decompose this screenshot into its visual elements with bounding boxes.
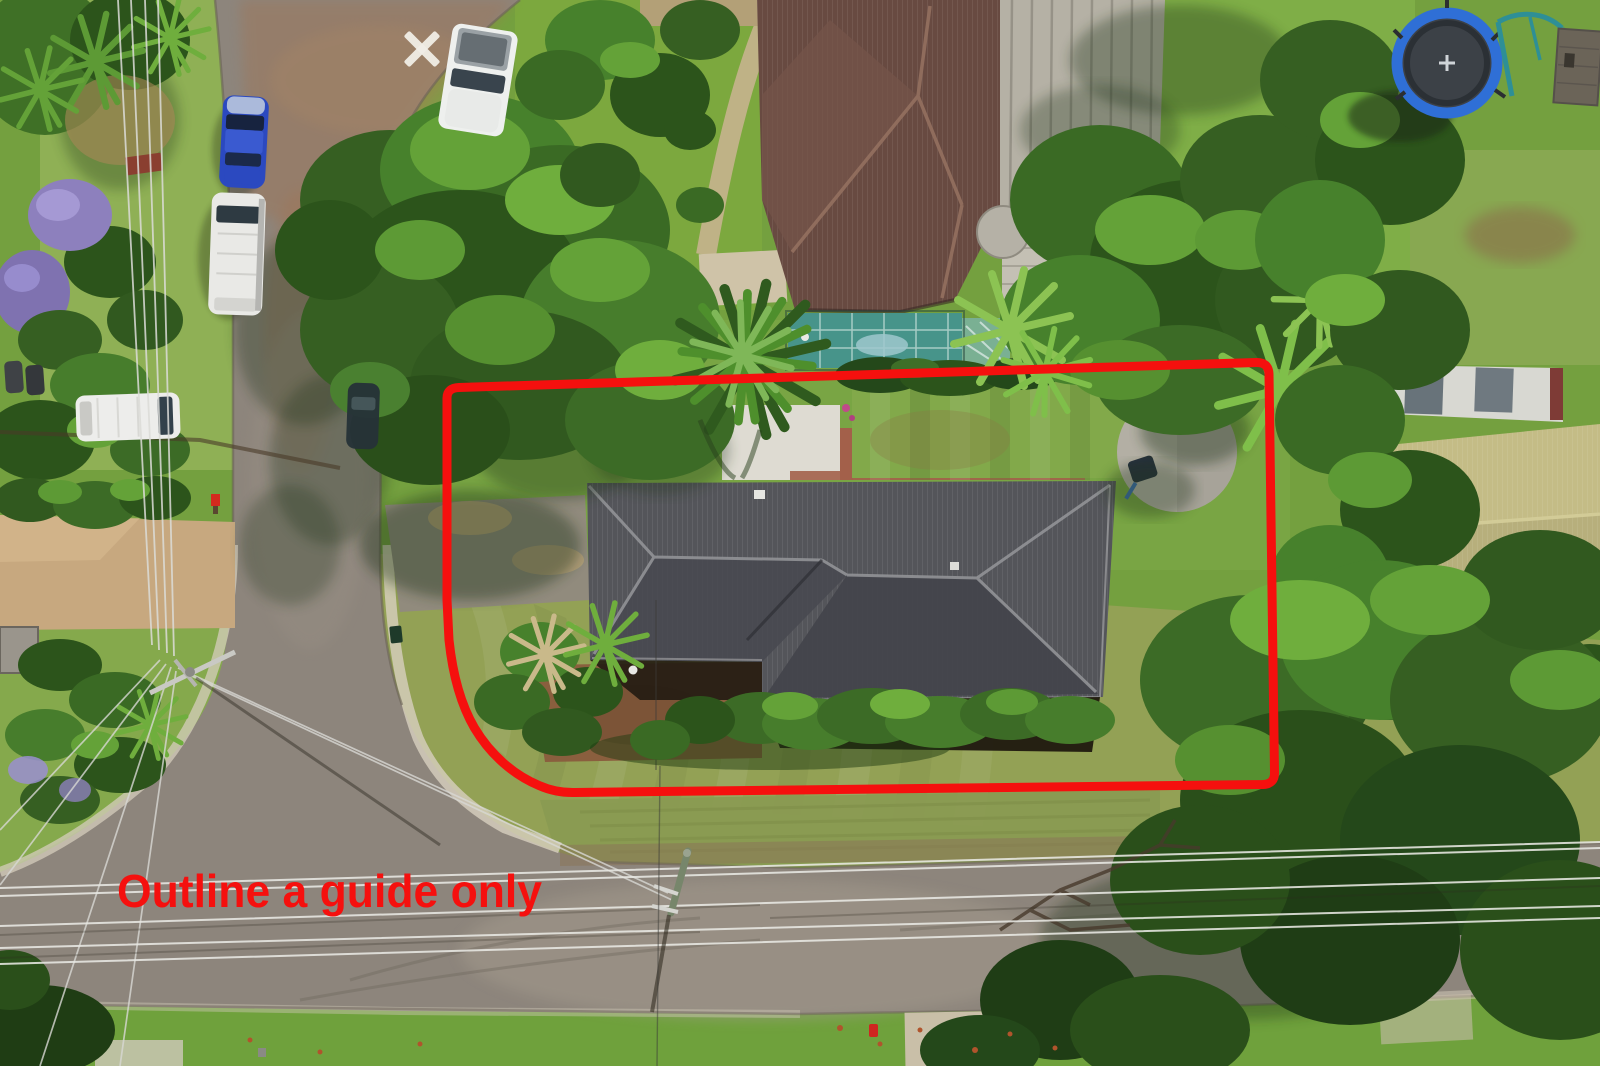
green-wheelie-bin — [389, 625, 403, 643]
skylight-2 — [1474, 367, 1514, 412]
blue-hatchback — [219, 95, 270, 189]
white-dot-dish — [629, 666, 638, 675]
maroon-edge — [1550, 368, 1563, 420]
pink-flower2 — [849, 415, 855, 421]
island-purple-flowers — [8, 756, 48, 784]
island-purple-flowers2 — [59, 778, 91, 802]
gray-marker — [258, 1048, 266, 1057]
roof-vent-2 — [950, 562, 959, 570]
aerial-photo: Outline a guide only — [0, 0, 1600, 1066]
mailbox-post — [213, 506, 218, 514]
timber-cubby — [1553, 29, 1600, 106]
roof-vent-1 — [754, 490, 765, 499]
disclaimer-text: Outline a guide only — [117, 865, 542, 917]
dirt-patch — [1465, 207, 1575, 263]
road-light-patch — [460, 880, 1060, 1020]
dark-car-in-shade — [346, 382, 380, 449]
white-van-driveway — [75, 392, 181, 442]
white-van-street — [208, 192, 266, 316]
pink-flower — [842, 404, 850, 412]
red-mailbox — [211, 494, 220, 506]
pool-water — [856, 334, 908, 356]
fire-hydrant — [869, 1024, 878, 1037]
